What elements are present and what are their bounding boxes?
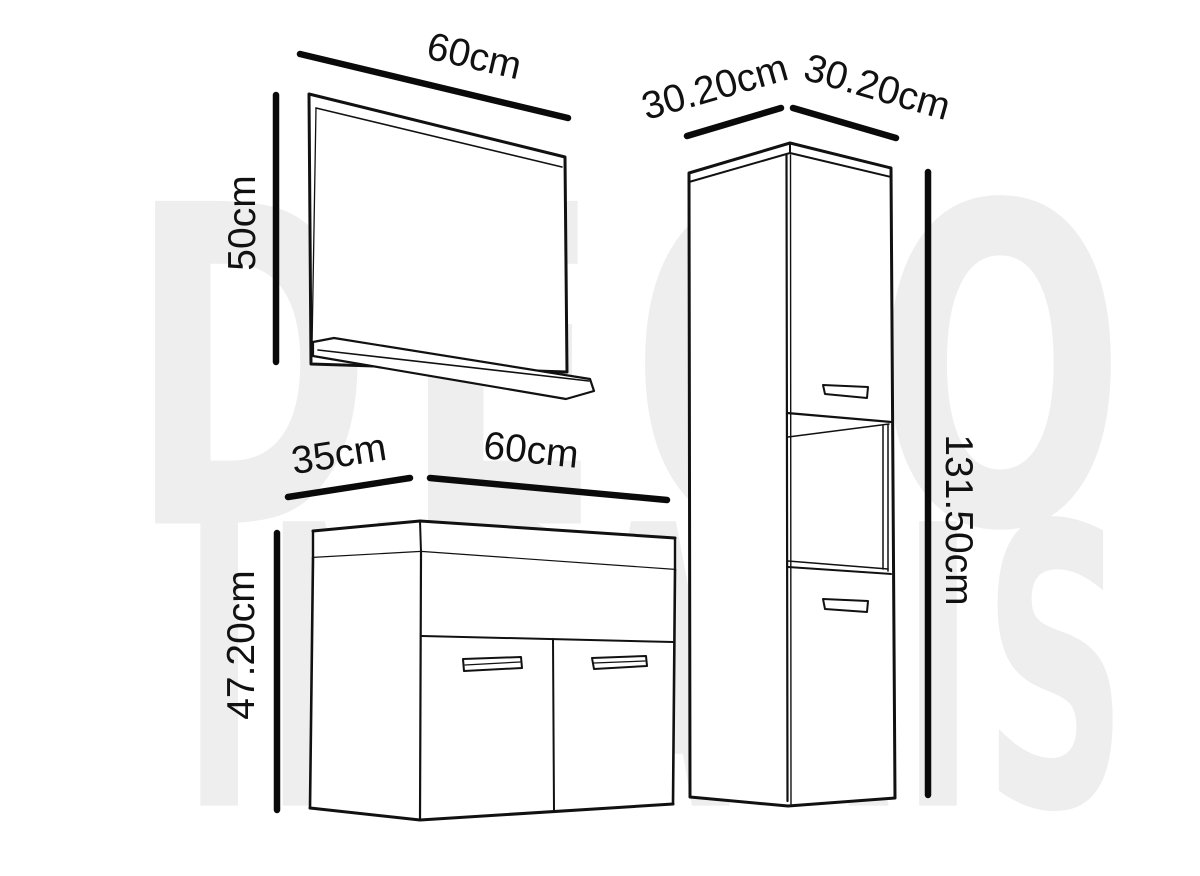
column-drawing — [689, 143, 895, 806]
column-door-gap-line — [791, 155, 792, 804]
column-body — [689, 143, 895, 806]
vanity-height-label: 47.20cm — [220, 570, 264, 720]
column-bottom-door-handle — [823, 599, 868, 612]
mirror-frame — [309, 94, 567, 372]
furniture-line-art — [0, 0, 1200, 876]
diagram-canvas: DECO INPARIS — [0, 0, 1200, 876]
vanity-drawing — [310, 521, 675, 820]
dim-line-column-width — [793, 108, 896, 138]
dim-line-vanity-width — [430, 478, 667, 500]
vanity-body — [310, 552, 675, 820]
mirror-drawing — [309, 94, 594, 399]
mirror-height-label: 50cm — [221, 175, 265, 270]
column-height-label: 131.50cm — [936, 434, 980, 605]
vanity-door-divider — [553, 639, 554, 812]
column-corner-edge — [787, 155, 788, 801]
vanity-corner-edge — [420, 552, 421, 820]
vanity-counter-corner — [420, 521, 421, 552]
